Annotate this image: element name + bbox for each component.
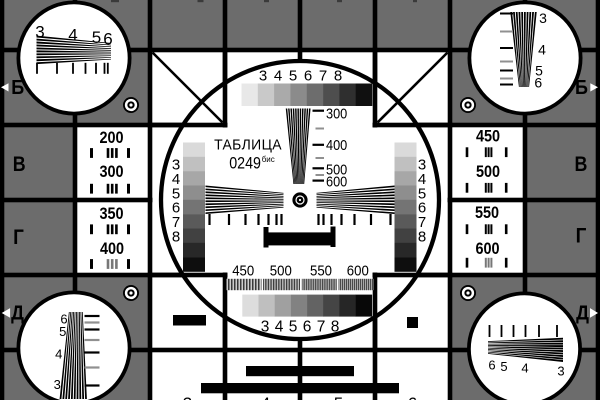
svg-text:4: 4 xyxy=(521,361,528,376)
svg-text:4: 4 xyxy=(538,42,546,58)
svg-text:5: 5 xyxy=(334,394,343,400)
svg-text:3: 3 xyxy=(539,10,547,26)
svg-text:6: 6 xyxy=(408,394,417,400)
svg-text:450: 450 xyxy=(476,127,500,145)
svg-text:5: 5 xyxy=(92,28,101,47)
svg-text:4: 4 xyxy=(261,394,270,400)
svg-text:5: 5 xyxy=(289,68,297,85)
svg-text:6: 6 xyxy=(534,75,542,91)
svg-text:ТАБЛИЦА: ТАБЛИЦА xyxy=(214,137,282,154)
svg-text:7: 7 xyxy=(319,68,327,85)
svg-text:0249: 0249 xyxy=(229,154,261,172)
svg-text:3: 3 xyxy=(557,364,564,379)
svg-text:3: 3 xyxy=(259,68,267,85)
svg-text:3: 3 xyxy=(261,319,270,336)
svg-text:4: 4 xyxy=(68,26,77,45)
svg-text:8: 8 xyxy=(418,228,426,245)
svg-text:7: 7 xyxy=(317,319,326,336)
svg-text:6: 6 xyxy=(488,358,495,373)
svg-text:300: 300 xyxy=(326,104,347,121)
svg-text:Д: Д xyxy=(11,303,24,325)
svg-text:6: 6 xyxy=(103,30,112,49)
svg-text:200: 200 xyxy=(99,129,123,147)
svg-text:6: 6 xyxy=(303,319,312,336)
svg-text:400: 400 xyxy=(326,136,347,153)
svg-text:5: 5 xyxy=(289,319,298,336)
svg-text:3: 3 xyxy=(35,23,44,42)
svg-text:бис: бис xyxy=(262,155,275,164)
svg-text:8: 8 xyxy=(172,228,180,245)
svg-text:В: В xyxy=(13,153,26,177)
svg-text:600: 600 xyxy=(347,262,369,279)
svg-text:8: 8 xyxy=(334,68,342,85)
svg-text:8: 8 xyxy=(331,319,340,336)
svg-text:6: 6 xyxy=(304,68,312,85)
svg-text:500: 500 xyxy=(270,262,292,279)
svg-text:300: 300 xyxy=(99,163,123,181)
svg-text:Г: Г xyxy=(576,225,587,248)
svg-text:550: 550 xyxy=(475,204,499,222)
svg-text:4: 4 xyxy=(275,319,284,336)
svg-text:Д: Д xyxy=(576,303,589,325)
svg-text:600: 600 xyxy=(475,240,499,258)
svg-text:600: 600 xyxy=(326,172,347,189)
svg-text:450: 450 xyxy=(232,262,254,279)
svg-text:4: 4 xyxy=(274,68,282,85)
svg-text:5: 5 xyxy=(59,324,66,339)
svg-text:3: 3 xyxy=(54,377,61,392)
svg-text:400: 400 xyxy=(100,240,124,258)
svg-text:Г: Г xyxy=(13,226,24,249)
svg-text:4: 4 xyxy=(55,346,62,361)
svg-text:500: 500 xyxy=(476,163,500,181)
svg-text:5: 5 xyxy=(500,359,507,374)
svg-text:В: В xyxy=(575,153,588,177)
svg-text:3: 3 xyxy=(183,394,192,400)
svg-text:350: 350 xyxy=(99,205,123,223)
svg-text:550: 550 xyxy=(310,262,332,279)
